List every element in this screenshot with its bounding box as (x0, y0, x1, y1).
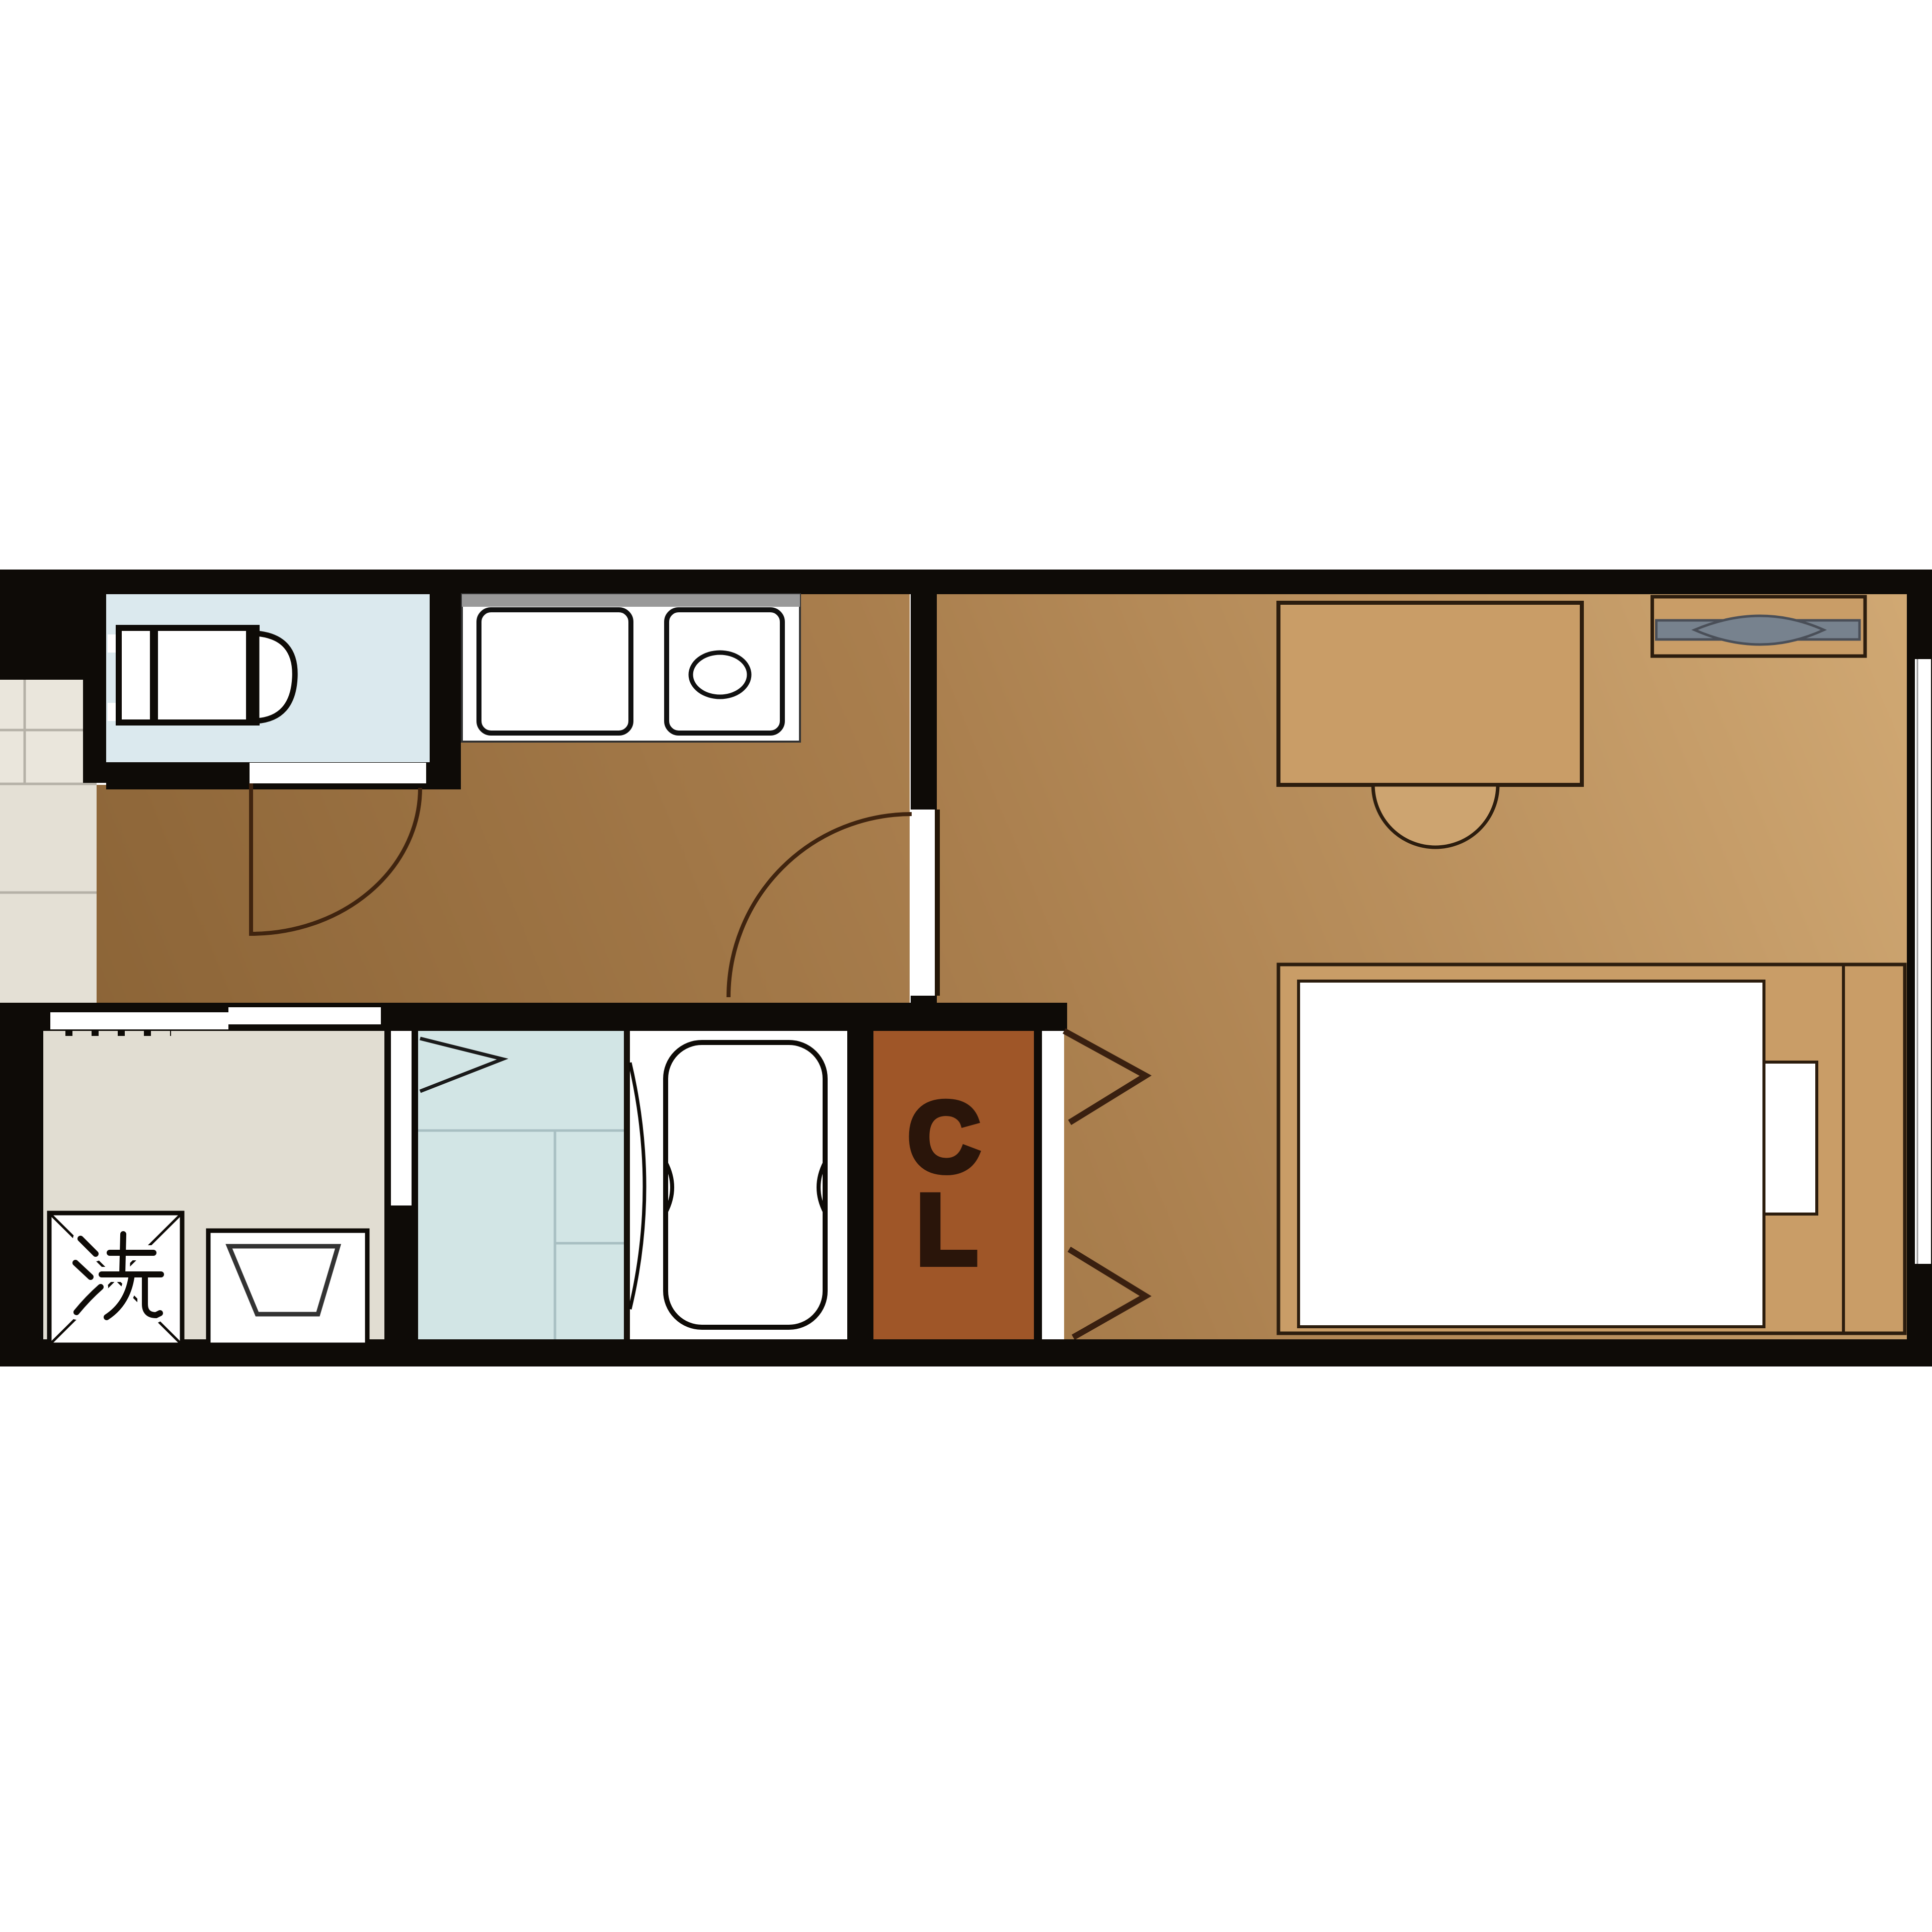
svg-text:L: L (917, 1174, 978, 1285)
